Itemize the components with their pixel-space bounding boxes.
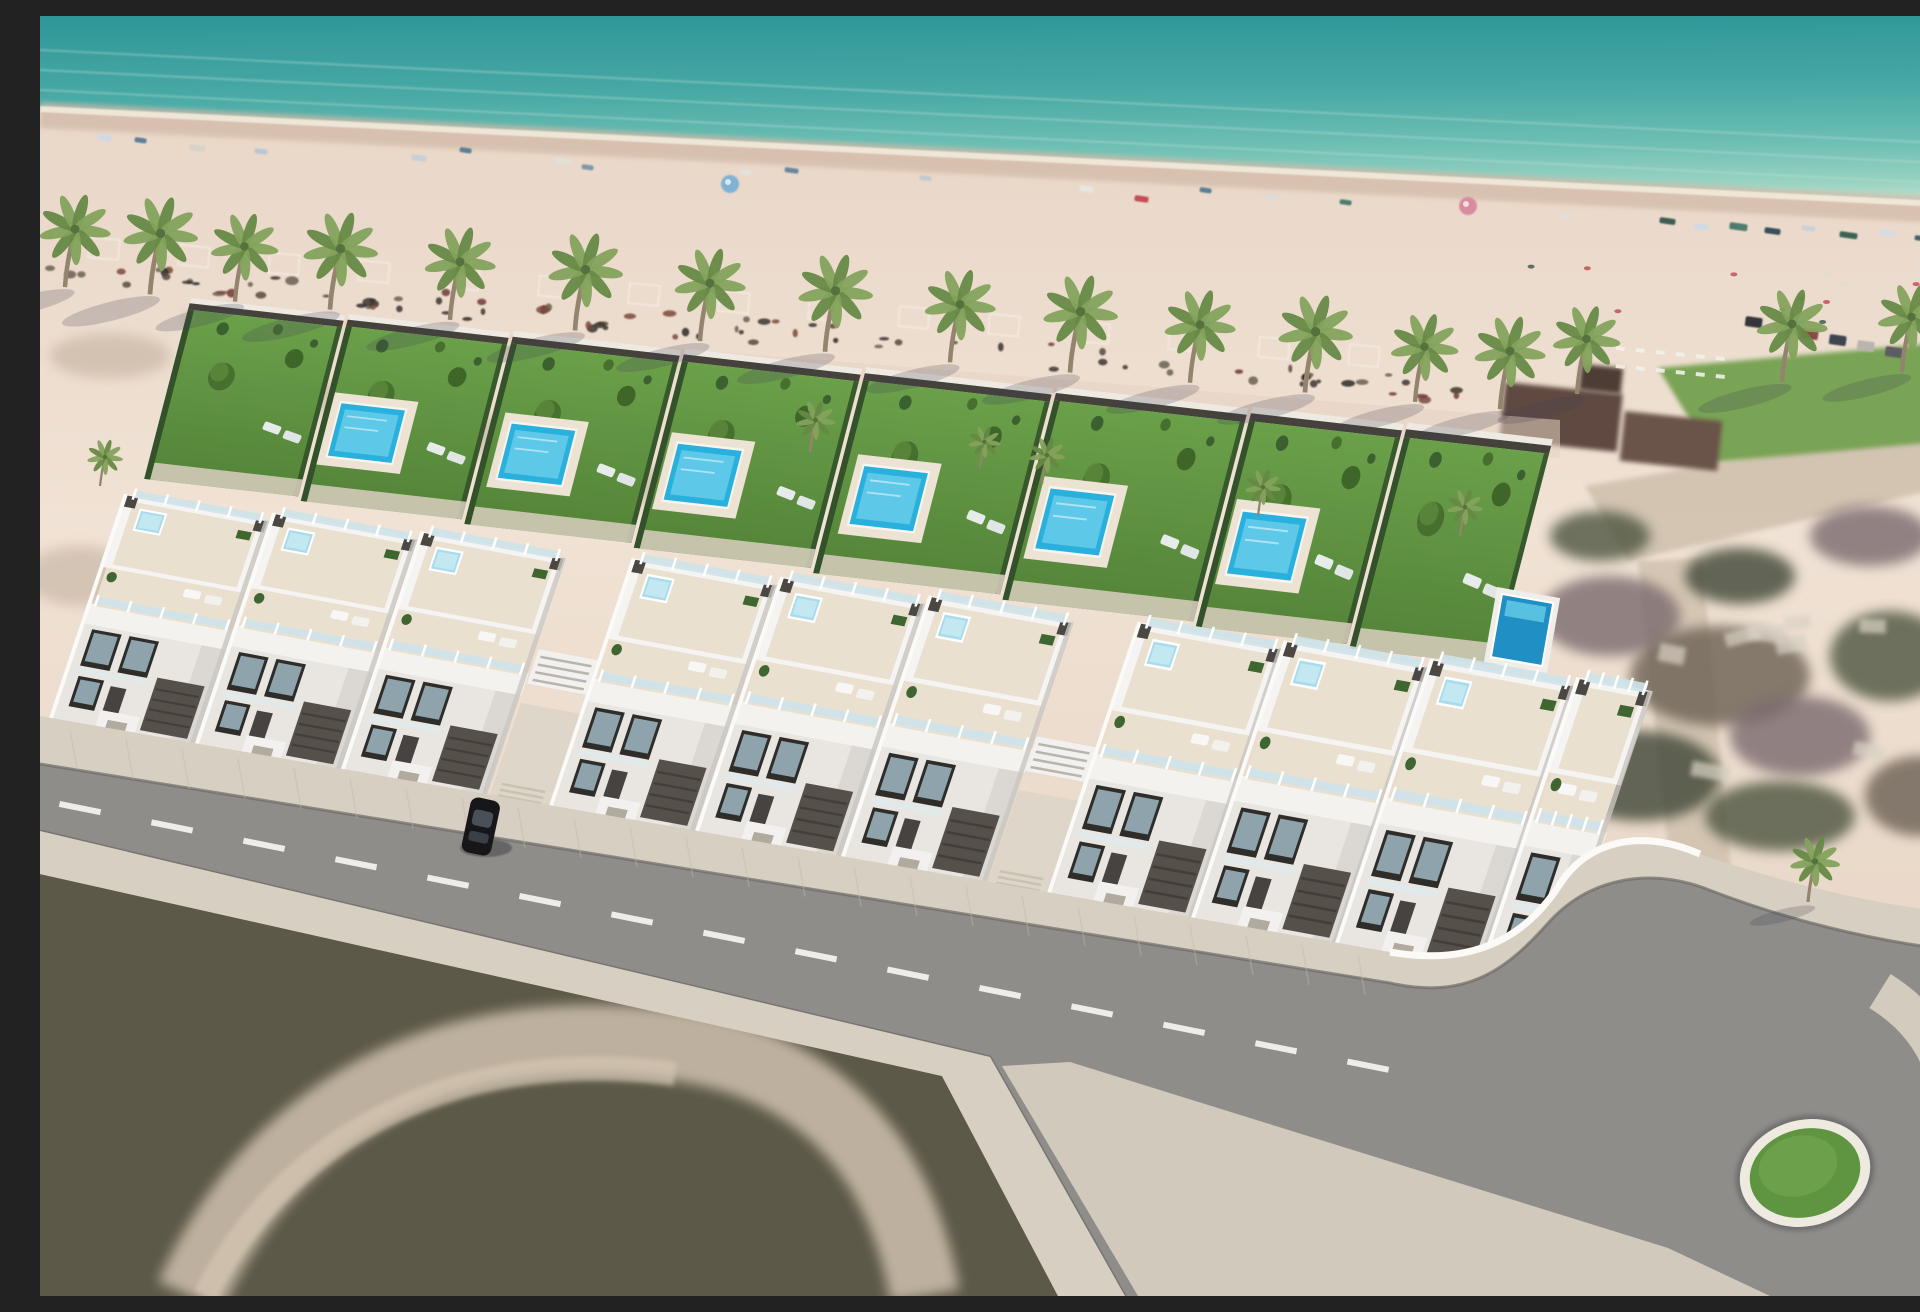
rock-debris: [442, 289, 451, 296]
rock-debris: [462, 317, 472, 321]
palm-crown-center: [831, 286, 840, 295]
palm-crown-center: [581, 265, 590, 274]
rock-debris: [663, 310, 677, 316]
rock-debris: [895, 339, 903, 345]
pool-water-light: [334, 409, 398, 457]
rock-debris: [586, 321, 592, 329]
scrub-patch: [1685, 548, 1795, 604]
rock-debris: [45, 265, 55, 271]
rock-debris: [77, 271, 85, 277]
beach-goer: [1819, 320, 1826, 324]
palm-crown-center: [1463, 505, 1468, 510]
palm-crown-center: [71, 225, 80, 234]
pool-water-light: [670, 450, 735, 500]
rock-debris: [270, 276, 280, 280]
rock-debris: [833, 338, 838, 343]
rock-debris: [743, 316, 750, 322]
rock-debris: [1288, 365, 1292, 373]
palm-crown-center: [456, 257, 465, 266]
rock-debris: [536, 306, 550, 314]
palm-crown-center: [1196, 320, 1205, 329]
rock-debris: [874, 345, 883, 349]
palm-crown-center: [1812, 858, 1818, 864]
scene-canvas: [40, 16, 1920, 1296]
rock-debris: [1049, 367, 1059, 372]
rock-debris: [481, 308, 486, 315]
rock-debris: [182, 281, 194, 284]
rock-debris: [436, 297, 442, 304]
rock-debris: [477, 299, 486, 305]
palm-crown-center: [156, 229, 165, 238]
rock-debris: [1248, 376, 1258, 384]
scrub-patch: [1730, 696, 1870, 776]
rock-debris: [758, 318, 771, 325]
palm-crown-center: [1420, 343, 1429, 352]
rock-debris: [793, 329, 798, 337]
scrub-patch: [1705, 781, 1855, 851]
rock-debris: [285, 276, 298, 285]
palm-crown-center: [956, 300, 965, 309]
palm-crown-center: [1907, 313, 1916, 322]
beach-goer: [1841, 282, 1848, 286]
rock-debris: [1098, 359, 1107, 366]
rock-debris: [1235, 369, 1243, 374]
rock-debris: [748, 339, 759, 345]
beach-goer: [1730, 272, 1737, 276]
rock-debris: [1385, 373, 1393, 376]
rock-debris: [396, 306, 403, 313]
rock-debris: [1389, 392, 1397, 396]
rock-debris: [1048, 342, 1054, 346]
beach-goer: [1824, 270, 1831, 274]
pool-water-light: [504, 430, 569, 479]
rock-debris: [1310, 380, 1318, 387]
scrub-patch: [1550, 511, 1650, 561]
palm-crown-center: [706, 279, 715, 288]
pool-water-light: [856, 473, 921, 525]
palm-crown-center: [813, 418, 818, 423]
rock-debris: [1167, 369, 1174, 376]
sand-mottle: [50, 334, 170, 378]
rock-debris: [603, 325, 609, 330]
rock-debris: [808, 323, 817, 327]
rock-debris: [122, 281, 131, 287]
rock-debris: [1341, 380, 1355, 387]
umbrella-highlight: [1463, 201, 1469, 207]
umbrella-highlight: [725, 179, 731, 185]
beach-goer: [1913, 258, 1920, 262]
rock-debris: [1099, 348, 1106, 356]
beach-goer: [1549, 294, 1556, 298]
beach-goer: [1913, 282, 1920, 286]
rock-debris: [624, 313, 636, 319]
palm-crown-center: [336, 244, 345, 253]
rock-debris: [1159, 361, 1170, 369]
rock-debris: [735, 326, 739, 333]
rock-debris: [1402, 380, 1410, 386]
palm-crown-center: [982, 440, 986, 444]
rock-debris: [1123, 365, 1128, 369]
rock-debris: [682, 328, 689, 337]
beach-bar-roof: [1620, 411, 1723, 471]
rock-debris: [323, 294, 330, 297]
terrain-structure: [1784, 615, 1812, 631]
terrain-structure: [1859, 619, 1886, 634]
rock-debris: [672, 334, 678, 340]
rock-debris: [772, 319, 780, 323]
terrain-structure: [1747, 622, 1786, 643]
rock-debris: [998, 343, 1004, 352]
palm-crown-center: [1261, 485, 1266, 490]
palm-crown-center: [240, 242, 249, 251]
rock-debris: [162, 273, 170, 280]
beach-goer: [1614, 309, 1621, 313]
palm-crown-center: [1788, 320, 1797, 329]
aerial-render: [40, 16, 1920, 1296]
palm-crown-center: [1582, 335, 1591, 344]
beach-goer: [1528, 265, 1535, 269]
rock-debris: [216, 291, 229, 294]
rock-debris: [739, 330, 744, 334]
rock-debris: [255, 292, 266, 299]
palm-crown-center: [1076, 307, 1085, 316]
rock-debris: [117, 268, 126, 274]
palm-crown-center: [1311, 327, 1320, 336]
rock-debris: [248, 282, 253, 287]
rock-debris: [356, 304, 367, 308]
rock-debris: [879, 337, 889, 341]
palm-crown-center: [1045, 453, 1050, 458]
beach-goer: [1823, 300, 1830, 304]
rock-debris: [394, 296, 403, 301]
rock-debris: [1454, 392, 1460, 399]
palm-crown-center: [103, 455, 108, 460]
beach-goer: [1584, 266, 1591, 270]
palm-crown-center: [1506, 347, 1515, 356]
rock-debris: [1356, 379, 1369, 385]
